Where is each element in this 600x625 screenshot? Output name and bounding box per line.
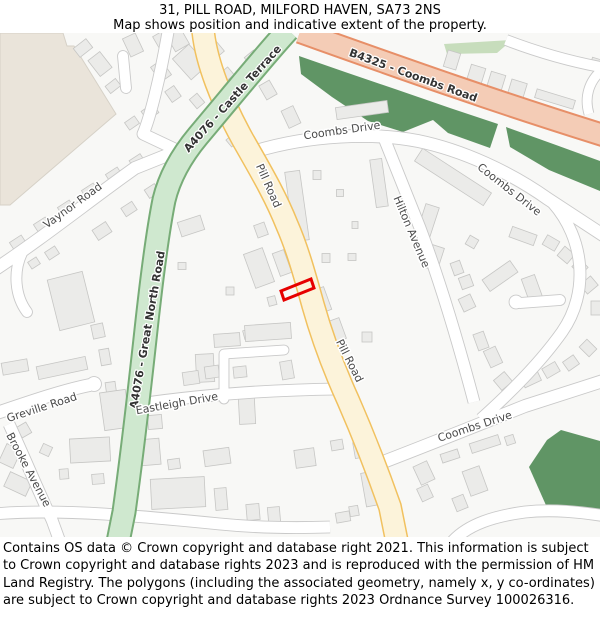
building [267,296,277,307]
culdesac [87,377,101,391]
page-title: 31, PILL ROAD, MILFORD HAVEN, SA73 2NS [0,3,600,18]
page-subtitle: Map shows position and indicative extent… [0,18,600,33]
building [92,473,105,484]
building [204,365,220,379]
building [349,505,360,516]
building [352,222,358,229]
building [313,171,321,180]
copyright-text: Contains OS data © Crown copyright and d… [0,537,600,609]
building [362,332,372,342]
header: 31, PILL ROAD, MILFORD HAVEN, SA73 2NS M… [0,0,600,33]
road-crescent-spur [520,300,560,303]
building [233,366,247,378]
building [59,469,69,480]
building [182,370,200,385]
building [246,503,260,520]
road-top-left-stub [123,56,126,88]
building [91,323,106,339]
building [238,398,255,425]
building [280,360,295,380]
building [337,190,344,197]
building [591,301,600,315]
building [69,437,110,463]
building [348,254,356,261]
building [322,254,330,263]
building [178,263,186,270]
building [244,322,291,341]
building [294,448,316,469]
building [203,447,231,466]
building [150,477,205,510]
building [214,333,241,348]
building [226,287,234,295]
culdesac [510,296,523,309]
map-canvas: A4076 - Castle TerraceA4076 - Great Nort… [0,33,600,537]
building [335,511,351,523]
building [330,439,344,451]
building [147,414,162,429]
building [167,458,180,470]
building [214,488,228,511]
property-map: A4076 - Castle TerraceA4076 - Great Nort… [0,33,600,537]
